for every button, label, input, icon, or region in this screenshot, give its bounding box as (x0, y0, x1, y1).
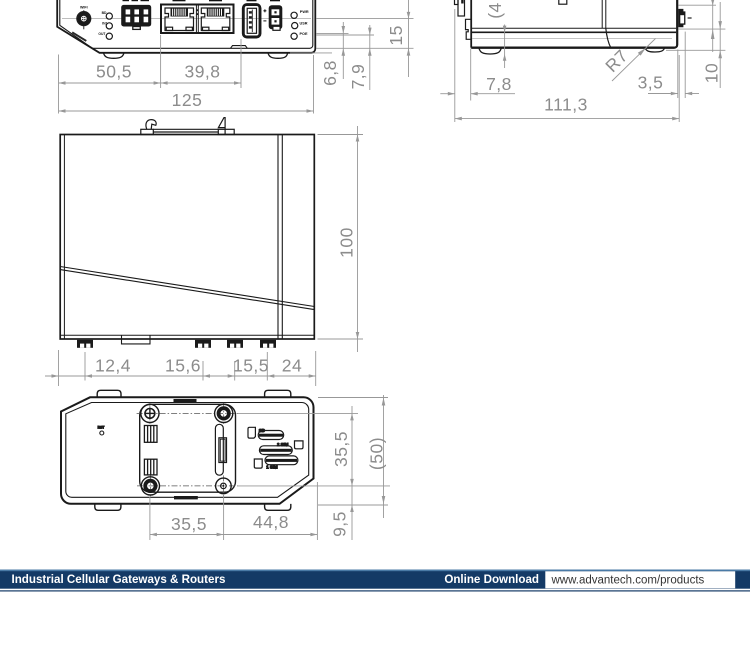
svg-text:10: 10 (702, 63, 722, 83)
svg-text:39,8: 39,8 (184, 62, 220, 82)
svg-text:111,3: 111,3 (544, 95, 588, 115)
svg-text:100: 100 (337, 227, 357, 258)
svg-text:44,8: 44,8 (253, 512, 289, 532)
svg-text:35,5: 35,5 (331, 431, 351, 467)
svg-text:3,5: 3,5 (638, 73, 664, 93)
svg-text:12,4: 12,4 (95, 356, 131, 376)
svg-text:Industrial Cellular Gateways &: Industrial Cellular Gateways & Routers (12, 573, 226, 586)
svg-text:(50): (50) (367, 437, 387, 470)
svg-text:WIFI: WIFI (80, 6, 88, 10)
svg-text:15: 15 (386, 25, 406, 45)
svg-text:1 SIM: 1 SIM (266, 465, 278, 470)
svg-text:24: 24 (282, 356, 302, 376)
svg-text:OUT: OUT (98, 32, 106, 36)
svg-text:RST: RST (98, 426, 106, 430)
svg-text:(4: (4 (485, 2, 505, 19)
svg-text:USR: USR (300, 21, 308, 25)
svg-text:PWR: PWR (300, 10, 309, 14)
svg-text:www.advantech.com/products: www.advantech.com/products (551, 575, 705, 587)
svg-text:50,5: 50,5 (96, 62, 132, 82)
svg-text:15,5: 15,5 (233, 356, 269, 376)
svg-text:7,9: 7,9 (348, 64, 368, 90)
svg-text:9,5: 9,5 (330, 511, 350, 537)
svg-text:125: 125 (172, 90, 203, 110)
svg-text:7,8: 7,8 (486, 74, 512, 94)
svg-text:POE: POE (300, 32, 308, 36)
svg-text:15,6: 15,6 (165, 356, 201, 376)
svg-text:6,8: 6,8 (320, 60, 340, 86)
svg-text:Online Download: Online Download (444, 573, 539, 586)
svg-text:35,5: 35,5 (171, 514, 207, 534)
